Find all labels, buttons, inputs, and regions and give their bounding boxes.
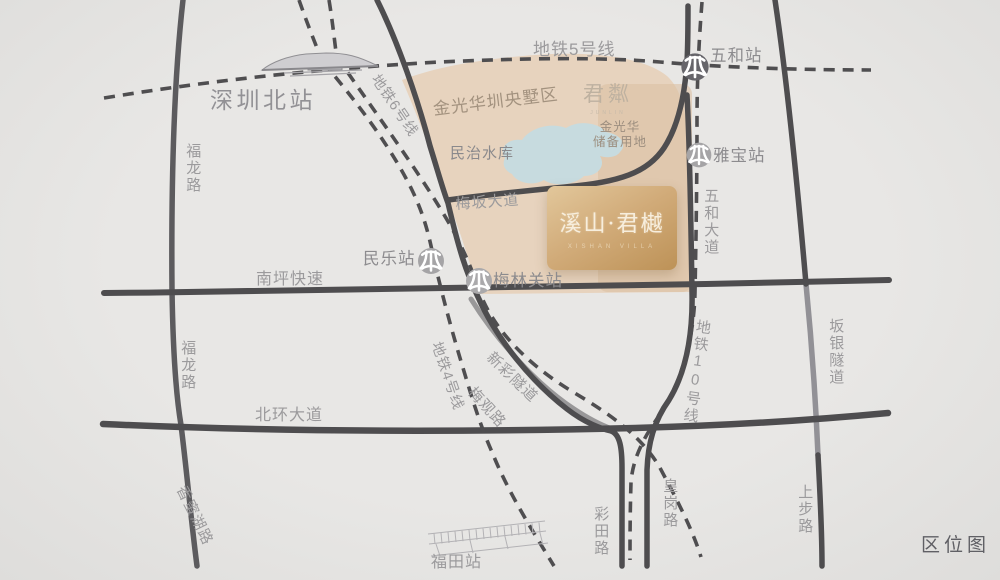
meilinguan-station-label: 梅林关站 bbox=[493, 272, 563, 291]
northeast-diagonal-road bbox=[775, 0, 806, 284]
banyin-tunnel-road bbox=[806, 284, 818, 455]
minle-station-label: 民乐站 bbox=[363, 250, 416, 269]
minzhi-reservoir-label: 民治水库 bbox=[450, 145, 514, 162]
shangbu-road-segment bbox=[818, 455, 822, 566]
junlin-logo-subtitle: JUNLIN bbox=[566, 110, 650, 116]
project-card: 溪山·君樾 XISHAN VILLA bbox=[547, 186, 677, 270]
shenzhen-north-station-label: 深圳北站 bbox=[210, 87, 316, 113]
reserve-land-label-line1: 金光华 bbox=[584, 120, 656, 135]
map-type-badge: 区位图 bbox=[921, 535, 990, 557]
metro-north-stub-2 bbox=[329, 0, 336, 52]
banyin-tunnel-label: 坂银隧道 bbox=[827, 318, 844, 386]
shangbu-road-label: 上步路 bbox=[796, 484, 813, 535]
wuhe-station-label: 五和站 bbox=[710, 47, 763, 66]
futian-station-label: 福田站 bbox=[431, 554, 482, 572]
project-subtitle: XISHAN VILLA bbox=[568, 244, 656, 250]
nanping-expressway-label: 南坪快速 bbox=[256, 271, 324, 289]
metro-north-stub-1 bbox=[299, 0, 319, 53]
metro-line5-label: 地铁5号线 bbox=[533, 40, 615, 60]
metro-station-icon-wuhe bbox=[681, 53, 708, 80]
caitian-road-label: 彩田路 bbox=[592, 506, 609, 557]
reserve-land-label: 金光华 储备用地 bbox=[584, 120, 656, 150]
huanggang-road-label: 皇岗路 bbox=[661, 478, 678, 529]
metro-station-icon-meilinguan bbox=[466, 268, 492, 294]
beihuan-avenue-label: 北环大道 bbox=[255, 407, 323, 425]
fulong-road-label-lower: 福龙路 bbox=[179, 340, 196, 391]
yabao-station-label: 雅宝站 bbox=[713, 147, 766, 166]
shenzhen-north-station-icon bbox=[262, 53, 378, 76]
location-map: 地铁5号线 五和站 深圳北站 地铁6号线 福龙路 金光华圳央墅区 君粼 JUNL… bbox=[0, 0, 1000, 580]
junlin-logo: 君粼 bbox=[570, 78, 646, 108]
metro-station-icon-minle bbox=[418, 248, 444, 274]
fulong-road-label-upper: 福龙路 bbox=[184, 143, 201, 194]
metro-station-icon-yabao bbox=[687, 143, 712, 168]
project-name: 溪山·君樾 bbox=[560, 206, 665, 238]
wuhe-avenue-label: 五和大道 bbox=[702, 188, 719, 256]
reserve-land-label-line2: 储备用地 bbox=[584, 135, 656, 150]
